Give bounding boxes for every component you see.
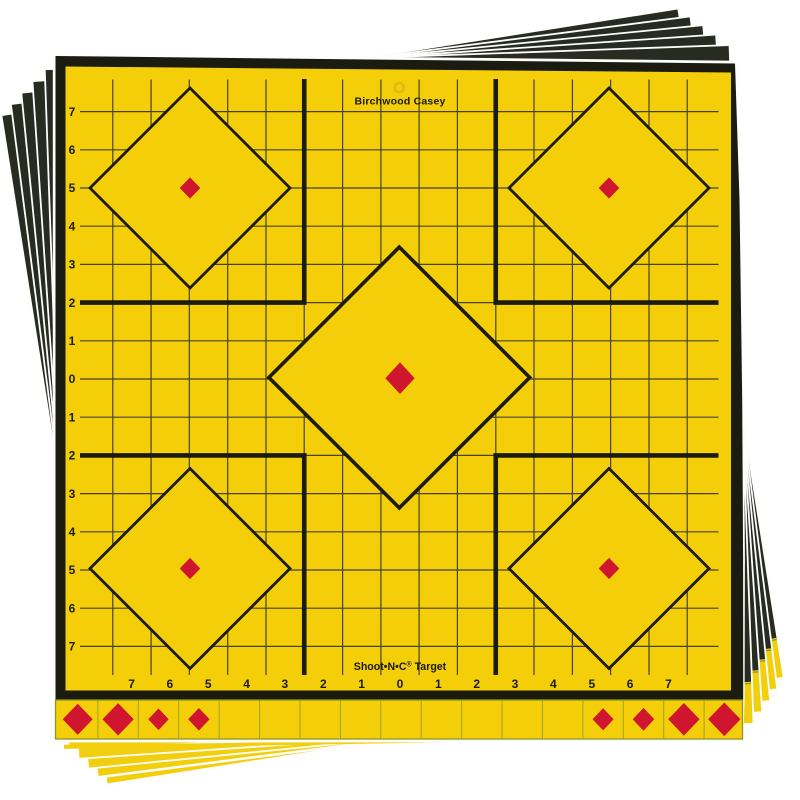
svg-text:Birchwood Casey: Birchwood Casey (354, 96, 445, 108)
svg-text:3: 3 (512, 677, 519, 691)
svg-text:1: 1 (358, 677, 365, 691)
svg-text:2: 2 (69, 449, 76, 463)
svg-text:2: 2 (69, 296, 76, 310)
svg-text:0: 0 (397, 677, 404, 691)
svg-text:1: 1 (69, 410, 76, 424)
svg-text:5: 5 (69, 563, 76, 577)
svg-text:2: 2 (473, 677, 480, 691)
svg-text:6: 6 (69, 601, 76, 615)
svg-text:5: 5 (588, 677, 595, 691)
svg-text:1: 1 (69, 334, 76, 348)
svg-text:0: 0 (69, 372, 76, 386)
svg-text:2: 2 (320, 677, 327, 691)
svg-text:4: 4 (550, 677, 557, 691)
svg-text:3: 3 (69, 258, 76, 272)
svg-text:3: 3 (69, 487, 76, 501)
svg-text:5: 5 (69, 181, 76, 195)
svg-text:1: 1 (435, 677, 442, 691)
svg-text:3: 3 (282, 677, 289, 691)
svg-text:5: 5 (205, 677, 212, 691)
svg-text:6: 6 (69, 143, 76, 157)
svg-text:4: 4 (243, 677, 250, 691)
svg-text:7: 7 (128, 677, 135, 691)
svg-text:7: 7 (665, 677, 672, 691)
svg-text:7: 7 (69, 105, 76, 119)
svg-text:6: 6 (627, 677, 634, 691)
svg-text:4: 4 (69, 219, 76, 233)
svg-text:6: 6 (167, 677, 174, 691)
svg-text:Shoot•N•C® Target: Shoot•N•C® Target (354, 661, 447, 674)
svg-text:7: 7 (69, 640, 76, 654)
svg-text:4: 4 (69, 525, 76, 539)
